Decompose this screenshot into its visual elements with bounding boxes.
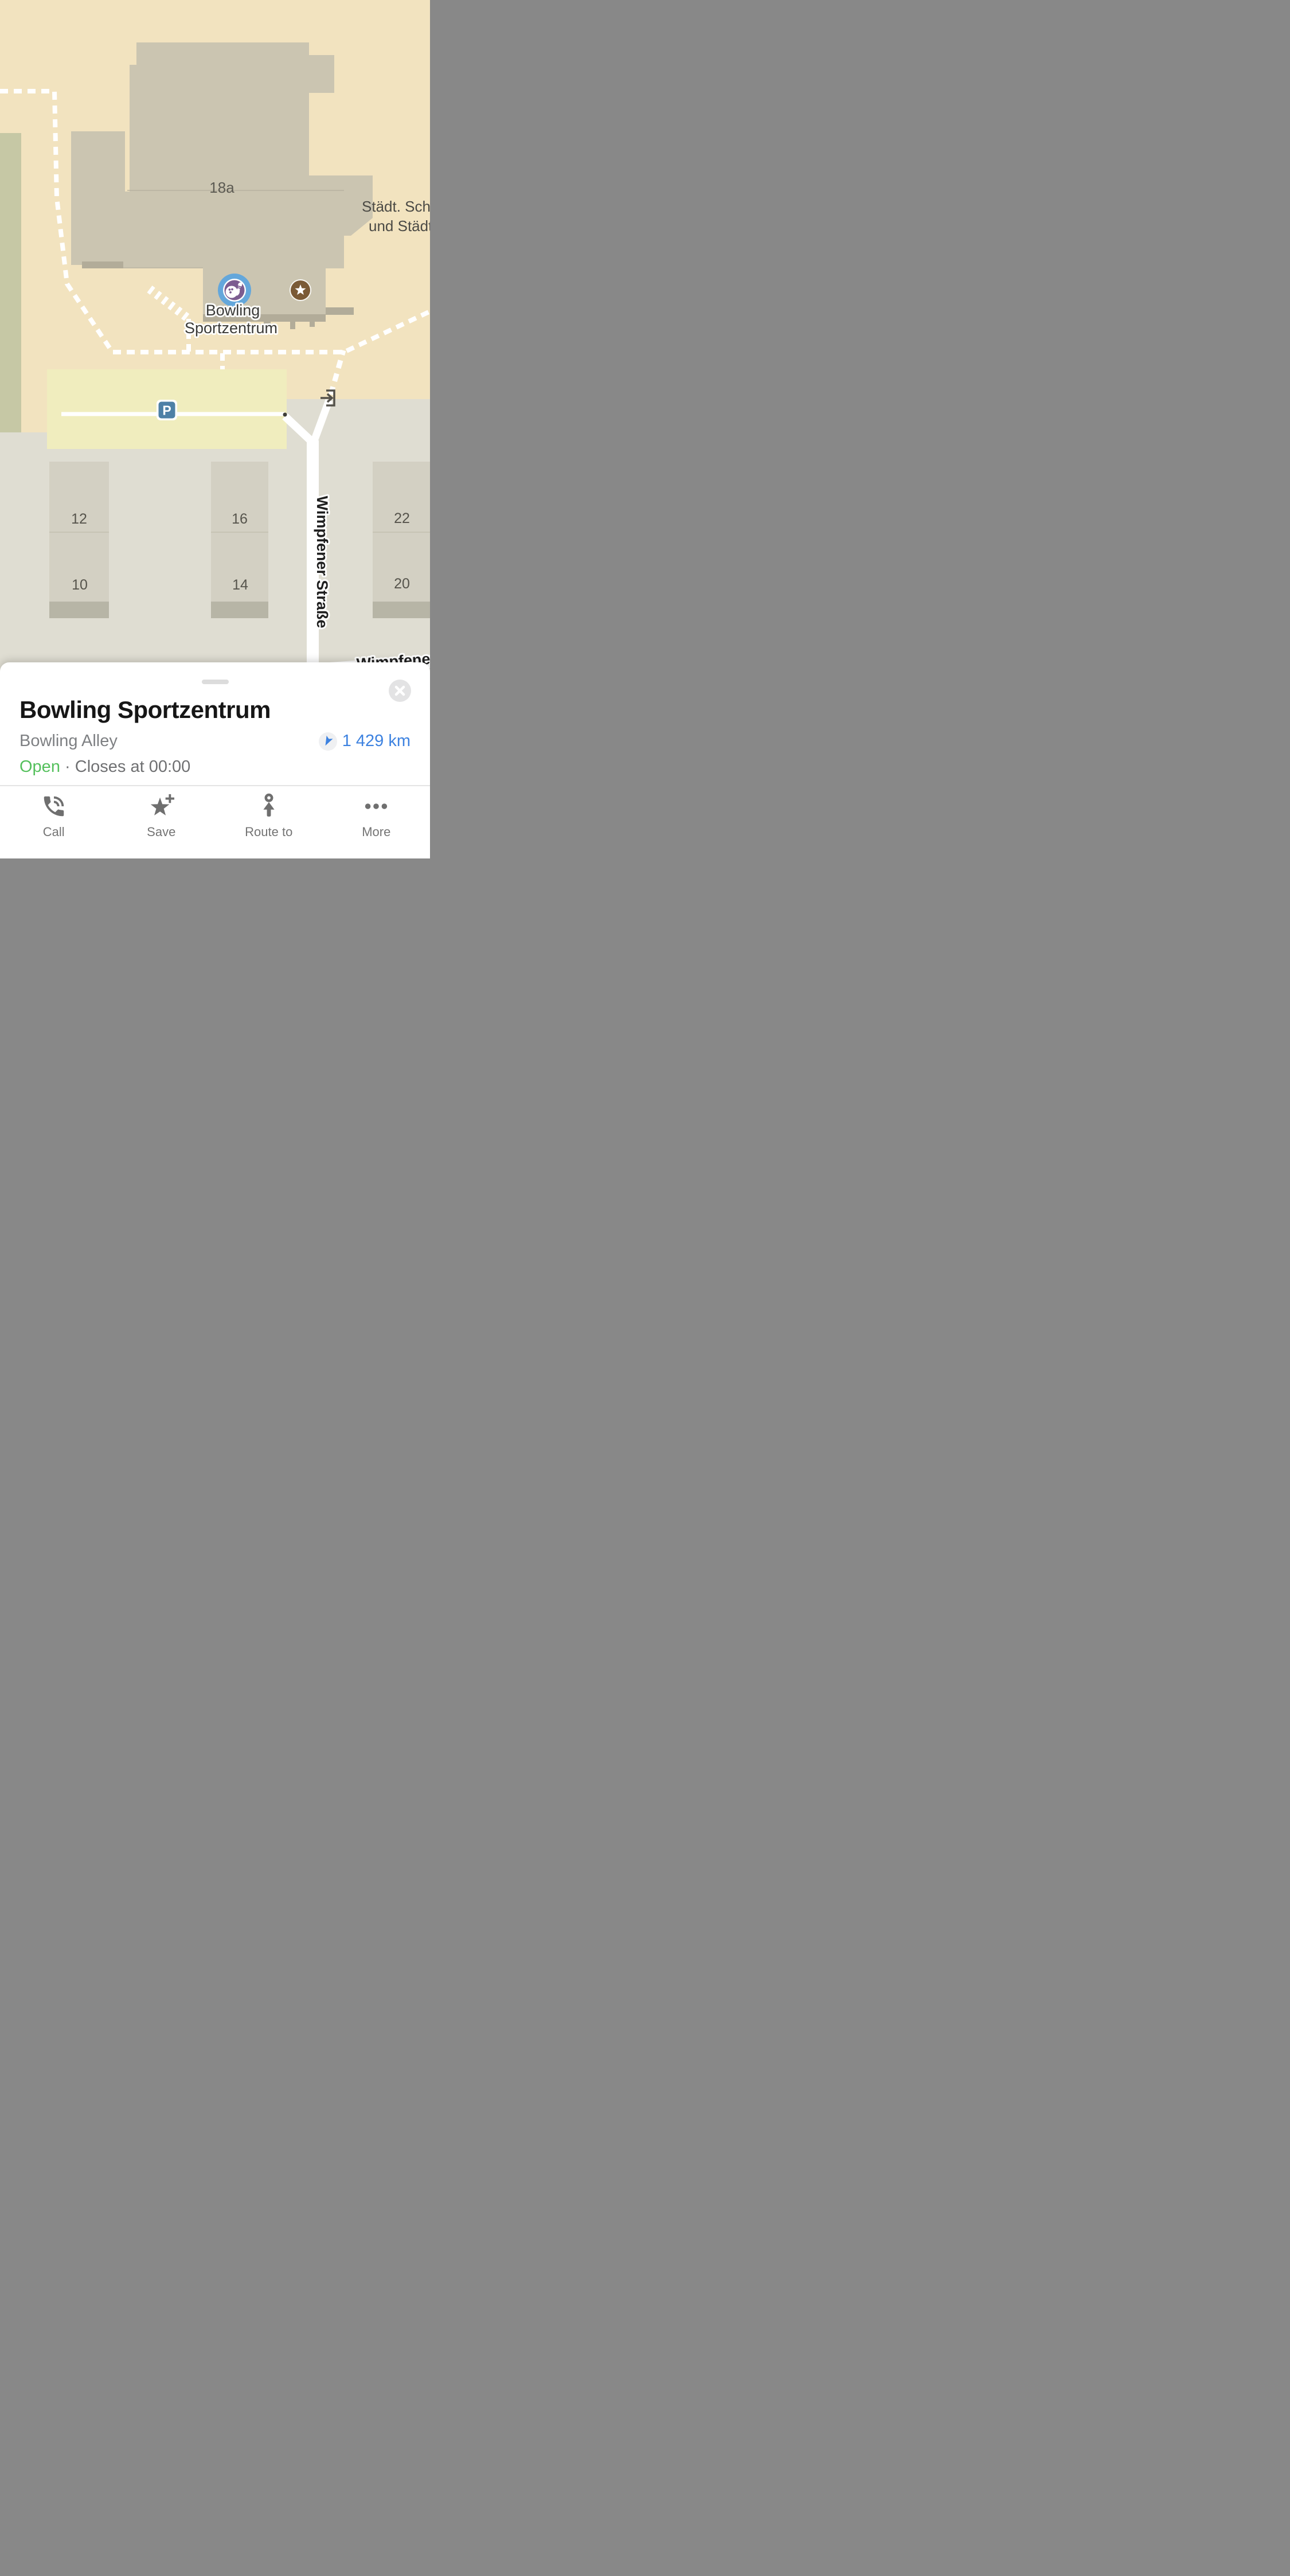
save-button[interactable]: Save: [108, 793, 216, 840]
call-button[interactable]: Call: [0, 793, 108, 840]
svg-text:Städt. Schlo: Städt. Schlo: [362, 198, 430, 215]
house-block: [49, 462, 109, 618]
navigation-arrow-icon: [319, 732, 337, 751]
status-separator: ·: [65, 758, 71, 776]
more-button[interactable]: More: [323, 793, 431, 840]
phone-icon: [41, 793, 67, 819]
house-number: 16: [232, 511, 248, 527]
route-arrow-icon: [256, 793, 282, 819]
place-category: Bowling Alley: [19, 732, 118, 751]
house-block: [373, 462, 430, 618]
house-number: 12: [71, 511, 87, 527]
parking-icon[interactable]: P: [157, 400, 177, 420]
distance-indicator: 1 429 km: [319, 732, 411, 751]
sheet-drag-handle[interactable]: [202, 680, 229, 684]
status-open: Open: [19, 758, 60, 776]
place-title: Bowling Sportzentrum: [19, 696, 411, 724]
residential-blocks: [49, 462, 430, 618]
action-label: Call: [43, 825, 65, 840]
status-closes: Closes at 00:00: [75, 758, 191, 776]
street-name-vertical: Wimpfener Straße: [314, 496, 331, 629]
action-bar: Call Save Route to: [0, 786, 430, 840]
opening-hours-status: Open · Closes at 00:00: [19, 758, 411, 776]
svg-text:P: P: [162, 403, 171, 418]
house-block: [211, 462, 268, 618]
house-number: 14: [232, 577, 248, 593]
svg-text:und Städt.: und Städt.: [369, 217, 430, 235]
ellipsis-icon: [363, 793, 389, 819]
action-label: Route to: [245, 825, 292, 840]
maps-app-screen: 12 10 16 14 22 20 18a Städt. Schlo und S…: [0, 0, 430, 858]
house-number: 22: [394, 510, 410, 526]
place-detail-sheet: Bowling Sportzentrum Bowling Alley 1 429…: [0, 662, 430, 858]
distance-value: 1 429 km: [342, 732, 411, 751]
action-label: More: [362, 825, 390, 840]
house-number: 20: [394, 576, 410, 592]
bowling-ball-glyph: [226, 286, 238, 298]
action-label: Save: [147, 825, 175, 840]
green-area: [0, 133, 21, 432]
svg-text:Bowling: Bowling: [206, 302, 260, 319]
close-button[interactable]: [389, 680, 411, 702]
svg-text:Sportzentrum: Sportzentrum: [185, 319, 277, 337]
saved-place-star-icon[interactable]: [290, 279, 311, 301]
route-to-button[interactable]: Route to: [215, 793, 323, 840]
close-icon: [389, 680, 411, 702]
building-number-label: 18a: [209, 179, 234, 196]
house-number: 10: [72, 577, 88, 593]
star-plus-icon: [148, 793, 174, 819]
